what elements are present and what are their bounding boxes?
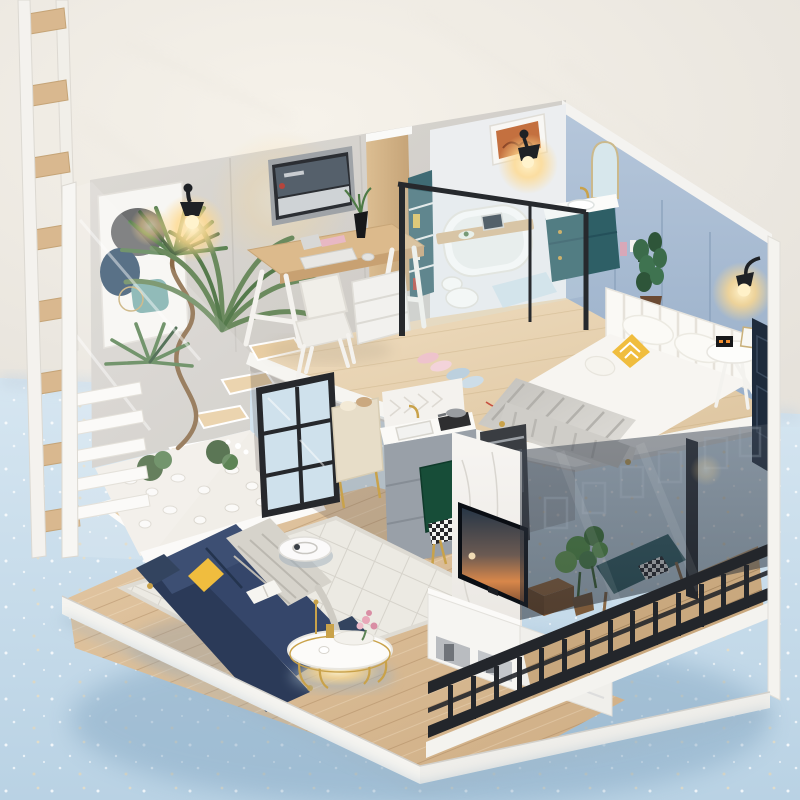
speaker [444,644,454,661]
arched-mirror [592,142,618,198]
coffee-cup [319,647,329,654]
gold-bottle [326,624,334,638]
dollhouse-photo: DIY miniature dollhouse photo — modern t… [0,0,800,800]
mouse [362,253,374,260]
kitchen-window [256,372,340,518]
alarm-clock [716,336,733,347]
right-corner-post [768,236,780,700]
robot-vacuum [279,537,333,568]
dollhouse-illustration [0,0,800,800]
tv-sun [469,553,476,560]
left-corner-post [62,182,78,558]
